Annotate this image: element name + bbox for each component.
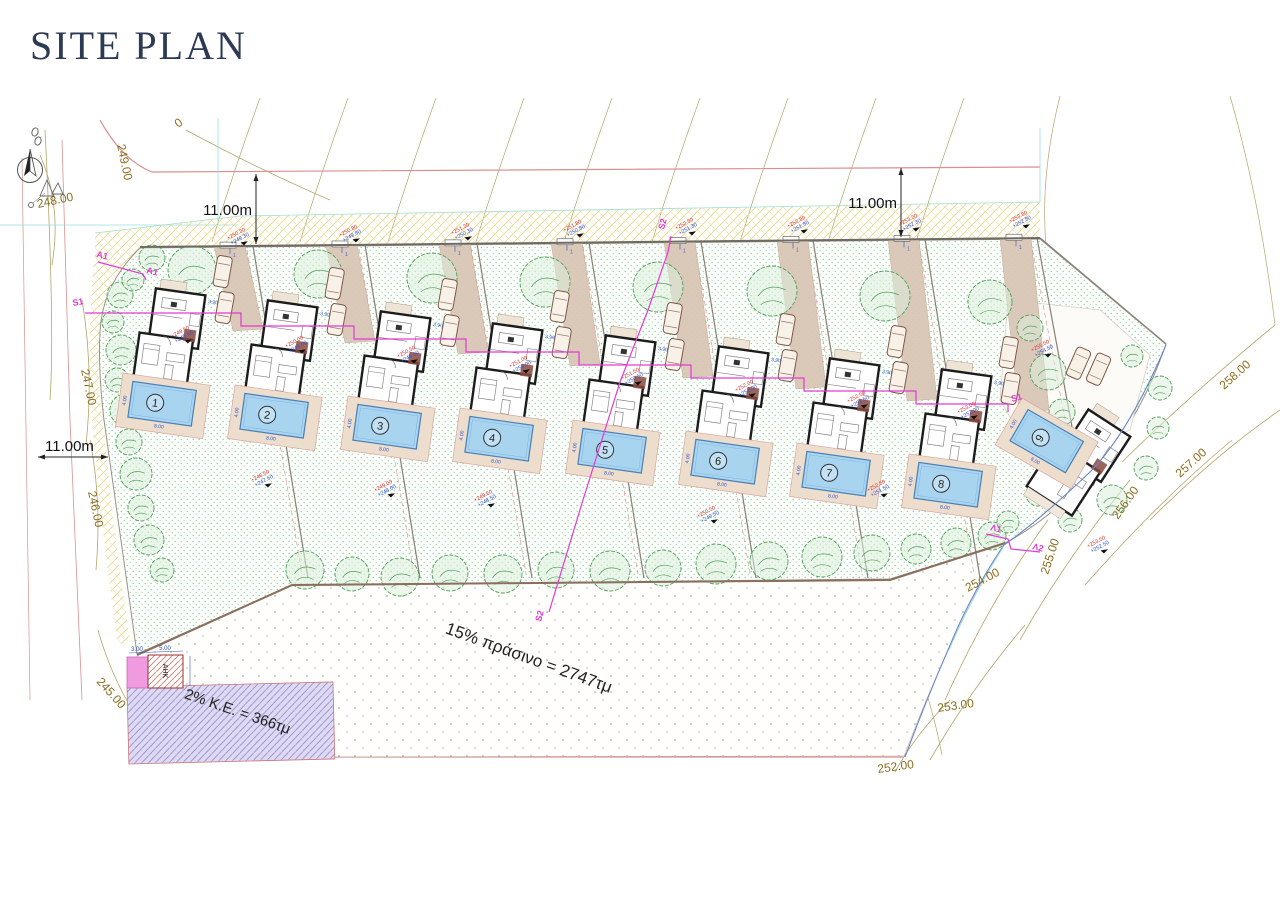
tree-icon [1148,376,1172,400]
tree-canopy [432,555,468,591]
substation-length-dim: 5.00 [159,646,171,652]
site-plan-page: SITE PLAN { "title": "SITE PLAN", "dimen… [0,0,1280,912]
tree-canopy [150,558,174,582]
north-arrow [18,149,43,183]
contour-label: 253.00 [936,696,975,715]
dimension-label: 11.00m [848,195,897,212]
contour-label: 257.00 [1173,445,1210,480]
substation-width-dim: 3.00 [131,647,143,653]
tree-canopy [1030,354,1066,390]
north-needle [24,149,30,176]
tree-canopy [484,555,522,593]
tree-canopy [941,528,971,558]
tree-canopy [750,542,788,580]
tree-icon [901,534,931,564]
tree-icon [968,280,1012,324]
contour-line [1045,96,1060,246]
tree-icon [484,555,522,593]
tree-icon [102,311,124,333]
boundary-tick-label: 1 [683,249,686,255]
tree-canopy [128,495,154,521]
tree-canopy [335,557,369,591]
boundary-tick-label: 1 [907,246,910,252]
tree-canopy [116,429,142,455]
tree-icon [122,269,144,291]
contour-label: 249.00 [114,143,135,182]
tree-icon [1017,315,1043,341]
tree-icon [696,544,736,584]
tree-icon [106,335,136,365]
tree-canopy [1148,376,1172,400]
contour-line [186,130,330,200]
tree-canopy [1134,456,1158,480]
tree-canopy [590,551,630,591]
dimension-label: 11.00m [45,438,94,455]
boundary-tick-label: 1 [458,251,461,257]
tree-icon [134,525,164,555]
substation-plot [127,657,148,688]
building-coefficient-area [127,682,335,764]
tree-icon [1121,345,1143,367]
tree-canopy [120,458,152,490]
tree-icon [381,558,419,596]
spot-elevation: +253.50+252.50 [1086,535,1112,559]
contour-line [1150,410,1280,520]
section-label-s1: S1 [72,296,85,308]
tree-canopy [1017,315,1043,341]
tree-icon [120,458,152,490]
tree-canopy [102,311,124,333]
tree-canopy [645,550,681,586]
tree-canopy [122,269,144,291]
tree-canopy [901,534,931,564]
tree-canopy [802,537,842,577]
tree-icon [750,542,788,580]
tree-icon [1147,417,1169,439]
tree-icon [747,266,797,316]
site-plan-drawing: 3.903.903.903.903.903.903.903.90 18.004.… [0,0,1280,912]
tree-icon [286,551,324,589]
tree-icon [1134,456,1158,480]
boundary-tick-label: 1 [570,250,573,256]
substation-label: ΑΗΚ [161,664,168,679]
dimension-label: 11.00m [203,202,252,219]
tree-canopy [860,271,910,321]
tree-icon [941,528,971,558]
tree-canopy [747,266,797,316]
boundary-tick-label: 1 [233,253,236,259]
tree-canopy [134,525,164,555]
contour-label: 0 [172,115,186,130]
tree-canopy [286,551,324,589]
contour-line [1230,96,1275,325]
tree-icon [1030,354,1066,390]
contour-label: 258.00 [1217,357,1254,392]
tree-icon [854,535,890,571]
tree-canopy [106,335,136,365]
tree-canopy [1147,417,1169,439]
tree-canopy [854,535,890,571]
tree-icon [645,550,681,586]
tree-icon [590,551,630,591]
tree-icon [335,557,369,591]
contour-label: 245.00 [94,675,129,712]
tree-icon [116,429,142,455]
tree-icon [860,271,910,321]
tree-canopy [1121,345,1143,367]
left-outer-red-line [22,158,30,700]
tree-icon [432,555,468,591]
left-boundary-red-line [62,140,82,700]
tree-canopy [968,280,1012,324]
tree-icon [150,558,174,582]
boundary-tick-label: 1 [1019,245,1022,251]
boundary-tick-label: 1 [796,247,799,253]
tree-icon [128,495,154,521]
benchmark-symbol [31,127,42,146]
tree-canopy [381,558,419,596]
tree-icon [802,537,842,577]
contour-label: 252.00 [876,757,915,776]
road-edge-red-line [100,120,1040,172]
boundary-tick-label: 1 [345,252,348,258]
tree-canopy [696,544,736,584]
